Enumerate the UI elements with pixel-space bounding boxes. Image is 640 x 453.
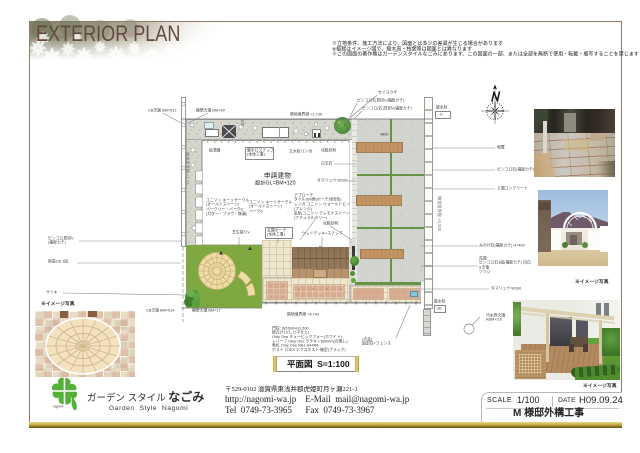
svg-text:隣地境界線 +2,200: 隣地境界線 +2,200 <box>436 196 443 232</box>
svg-text:nagomi: nagomi <box>53 405 64 409</box>
